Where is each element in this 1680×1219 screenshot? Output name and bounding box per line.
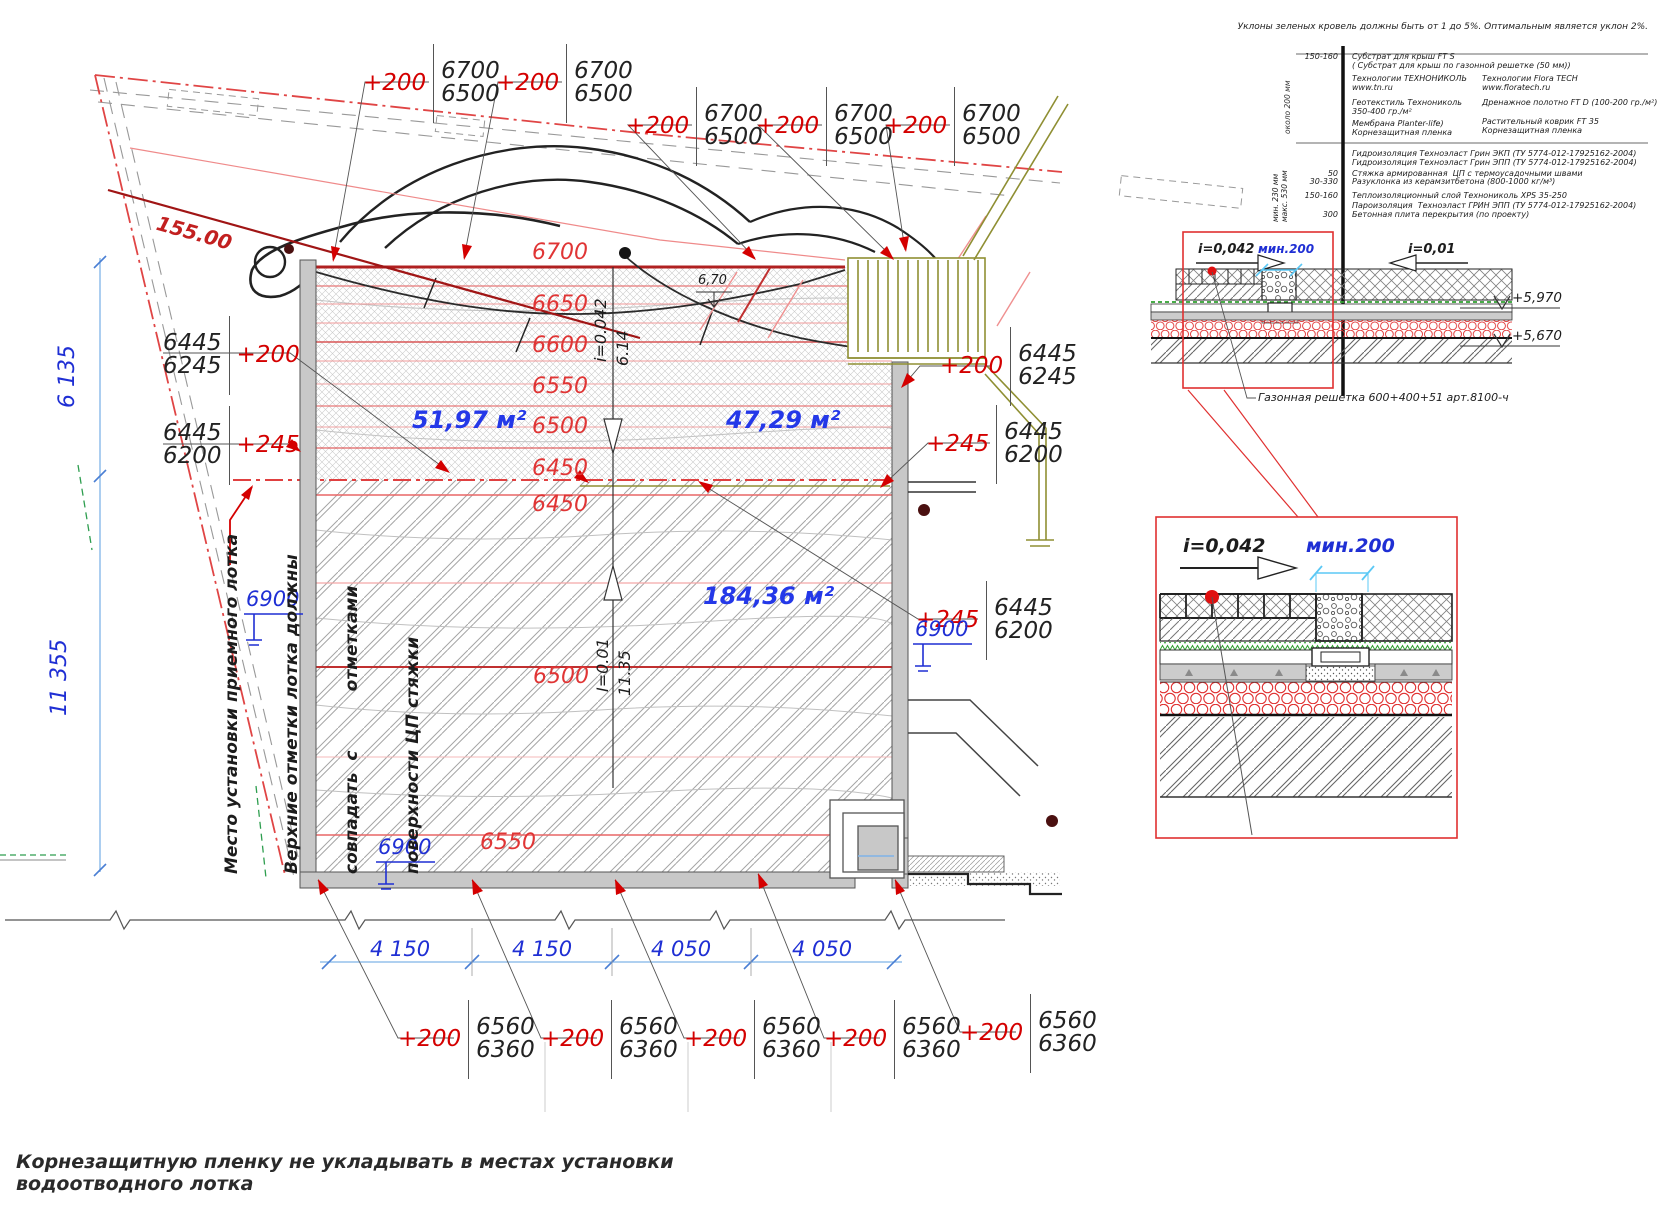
legend-plant-mat: Растительный коврик FT 35 xyxy=(1482,117,1599,126)
legend-depth-max: макс. 530 мм xyxy=(1281,170,1290,222)
level-marker-top: +20067006500 xyxy=(363,60,500,107)
marker-delta: +200 xyxy=(756,115,826,138)
marker-high: 6700 xyxy=(962,103,1021,126)
level-marker-top: +20067006500 xyxy=(884,103,1021,150)
detail-large-min200: мин.200 xyxy=(1306,536,1395,557)
marker-high: 6560 xyxy=(619,1016,678,1039)
marker-low: 6200 xyxy=(994,620,1053,643)
legend-base-row-desc: Теплоизоляционный слой Технониколь XPS 3… xyxy=(1352,191,1567,200)
legend-base-row-desc: Гидроизоляция Техноэласт Грин ЭКП (ТУ 57… xyxy=(1352,149,1636,158)
marker-delta: +200 xyxy=(398,1028,468,1051)
legend-base-row-thickness: 150-160 xyxy=(1282,191,1338,200)
break-line xyxy=(5,911,1005,929)
marker-delta: +200 xyxy=(940,355,1010,378)
contour-label: 6550 xyxy=(480,830,536,855)
marker-delta: +200 xyxy=(496,72,566,95)
legend-membrane: Мембрана Planter-life) xyxy=(1352,119,1444,128)
marker-low: 6360 xyxy=(1038,1033,1097,1056)
level-marker-bottom: +20065606360 xyxy=(824,1016,961,1063)
legend-base-row-desc: Гидроизоляция Техноэласт Грин ЭПП (ТУ 57… xyxy=(1352,158,1637,167)
detail-small-min200: мин.200 xyxy=(1258,243,1314,256)
marker-high: 6700 xyxy=(704,103,763,126)
legend-rootfilm-right: Корнезащитная пленка xyxy=(1482,126,1582,135)
slope-up-value: i=0.042 xyxy=(592,298,610,362)
marker-delta: +200 xyxy=(824,1028,894,1051)
marker-low: 6245 xyxy=(1018,366,1077,389)
level-marker-bottom: +20065606360 xyxy=(398,1016,535,1063)
dim-horizontal: 4 150 xyxy=(370,938,430,962)
marker-delta: +245 xyxy=(926,433,996,456)
gutter-note: Место установки приемного лотка Верхние … xyxy=(182,529,443,874)
area-label: 47,29 м² xyxy=(726,406,840,434)
dim-horizontal: 4 150 xyxy=(512,938,572,962)
marker-high: 6560 xyxy=(762,1016,821,1039)
marker-delta: +200 xyxy=(541,1028,611,1051)
legend-geotextile-2: 350-400 гр./м² xyxy=(1352,107,1412,116)
grate-label: Газонная решетка 600+400+51 арт.8100-ч xyxy=(1258,392,1509,404)
level-marker-top: +20067006500 xyxy=(626,103,763,150)
marker-delta: +200 xyxy=(626,115,696,138)
legend-brand-flora-1: Технологии Flora TECH xyxy=(1482,74,1578,83)
marker-low: 6200 xyxy=(1004,444,1063,467)
dim-vertical: 6 135 xyxy=(56,345,81,408)
legend-drain-mat: Дренажное полотно FT D (100-200 гр./м²) xyxy=(1482,98,1657,107)
marker-delta: +200 xyxy=(960,1022,1030,1045)
legend-depth-top: около 200 мм xyxy=(1284,81,1293,135)
marker-high: 6700 xyxy=(574,60,633,83)
legend-geotextile-1: Геотекстиль Технониколь xyxy=(1352,98,1462,107)
legend-brand-tn-url: www.tn.ru xyxy=(1352,83,1393,92)
contour-label: 6500 xyxy=(533,664,589,689)
contour-label: 6500 xyxy=(532,414,588,439)
legend-thickness-top: 150-160 xyxy=(1282,52,1338,61)
dim-vertical: 11 355 xyxy=(48,639,73,716)
right-structures xyxy=(908,482,1062,894)
level-marker-top: +20067006500 xyxy=(756,103,893,150)
contour-label: 6450 xyxy=(532,492,588,517)
marker-high: 6560 xyxy=(1038,1010,1097,1033)
legend-slope-note: Уклоны зеленых кровель должны быть от 1 … xyxy=(1208,22,1648,32)
legend-base-row-desc: Бетонная плита перекрытия (по проекту) xyxy=(1352,210,1529,219)
bottom-note-line1: Корнезащитную пленку не укладывать в мес… xyxy=(16,1152,674,1173)
contour-label: 6450 xyxy=(532,456,588,481)
legend-brand-tn-1: Технологии ТЕХНОНИКОЛЬ xyxy=(1352,74,1467,83)
marker-low: 6200 xyxy=(163,445,222,468)
level-marker-top: +20067006500 xyxy=(496,60,633,107)
marker-low: 6500 xyxy=(962,126,1021,149)
legend-rootfilm-left: Корнезащитная пленка xyxy=(1352,128,1452,137)
legend-brand-flora-url: www.floratech.ru xyxy=(1482,83,1550,92)
marker-high: 6700 xyxy=(441,60,500,83)
elevation-mark-5970: +5,970 xyxy=(1512,291,1562,306)
contour-label: 6600 xyxy=(532,333,588,358)
section-detail-large xyxy=(1156,517,1457,838)
legend-substrate-2: ( Субстрат для крыш по газонной решетке … xyxy=(1352,61,1571,70)
marker-delta: +200 xyxy=(363,72,433,95)
detail-small-slope-right: i=0,01 xyxy=(1408,243,1455,258)
marker-low: 6360 xyxy=(902,1039,961,1062)
slope-down-length: 11.35 xyxy=(616,650,634,696)
marker-high: 6445 xyxy=(163,422,222,445)
legend-base-row-desc: Пароизоляция Техноэласт ГРИН ЭПП (ТУ 577… xyxy=(1352,201,1636,210)
legend-base-row-desc: Разуклонка из керамзитбетона (800-1000 к… xyxy=(1352,177,1555,186)
slope-down-value: I=0.01 xyxy=(594,638,612,692)
marker-low: 6245 xyxy=(163,355,222,378)
marker-high: 6445 xyxy=(1018,343,1077,366)
marker-delta: +200 xyxy=(230,344,300,367)
dim-horizontal: 4 050 xyxy=(651,938,711,962)
level-marker-bottom: +20065606360 xyxy=(684,1016,821,1063)
detail-large-slope: i=0,042 xyxy=(1183,536,1266,557)
marker-delta: +200 xyxy=(884,115,954,138)
drawing-sheet: Уклоны зеленых кровель должны быть от 1 … xyxy=(0,0,1680,1219)
level-marker-right: +24564456200 xyxy=(926,421,1063,468)
gutter-note-line: поверхности ЦП стяжки xyxy=(403,529,423,874)
legend-substrate-1: Субстрат для крыш FT S xyxy=(1352,52,1455,61)
marker-high: 6445 xyxy=(994,597,1053,620)
area-label: 51,97 м² xyxy=(412,406,526,434)
spot-elevation: 6,70 xyxy=(698,274,727,289)
drain-elevation: 6900 xyxy=(915,618,968,642)
marker-high: 6560 xyxy=(476,1016,535,1039)
contour-label: 6550 xyxy=(532,374,588,399)
marker-delta: +200 xyxy=(684,1028,754,1051)
section-detail-small xyxy=(1151,232,1560,517)
gutter-note-line: совпадать с отметками xyxy=(342,529,362,874)
marker-low: 6500 xyxy=(441,83,500,106)
bottom-note-line2: водоотводного лотка xyxy=(16,1174,253,1195)
legend-base-row-thickness: 30-330 xyxy=(1282,177,1338,186)
gutter-note-line: Место установки приемного лотка xyxy=(222,529,242,874)
marker-low: 6360 xyxy=(762,1039,821,1062)
contour-label: 6650 xyxy=(532,292,588,317)
detail-small-slope-left: i=0,042 xyxy=(1198,243,1254,258)
marker-low: 6360 xyxy=(619,1039,678,1062)
contour-label: 6700 xyxy=(532,240,588,265)
marker-high: 6445 xyxy=(163,332,222,355)
marker-low: 6360 xyxy=(476,1039,535,1062)
level-marker-right: +20064456245 xyxy=(940,343,1077,390)
marker-delta: +245 xyxy=(230,434,300,457)
gutter-note-line: Верхние отметки лотка должны xyxy=(282,529,302,874)
marker-high: 6560 xyxy=(902,1016,961,1039)
level-marker-left: +20064456245 xyxy=(163,332,300,379)
marker-low: 6500 xyxy=(704,126,763,149)
level-marker-left: +24564456200 xyxy=(163,422,300,469)
marker-high: 6445 xyxy=(1004,421,1063,444)
elevation-mark-5670: +5,670 xyxy=(1512,329,1562,344)
slope-up-length: 6.14 xyxy=(614,330,632,366)
level-marker-bottom: +20065606360 xyxy=(541,1016,678,1063)
area-label: 184,36 м² xyxy=(703,582,834,610)
legend-base-row-thickness: 300 xyxy=(1282,210,1338,219)
marker-low: 6500 xyxy=(574,83,633,106)
dim-horizontal: 4 050 xyxy=(792,938,852,962)
level-marker-bottom: +20065606360 xyxy=(960,1010,1097,1057)
drain-pit xyxy=(830,800,904,878)
